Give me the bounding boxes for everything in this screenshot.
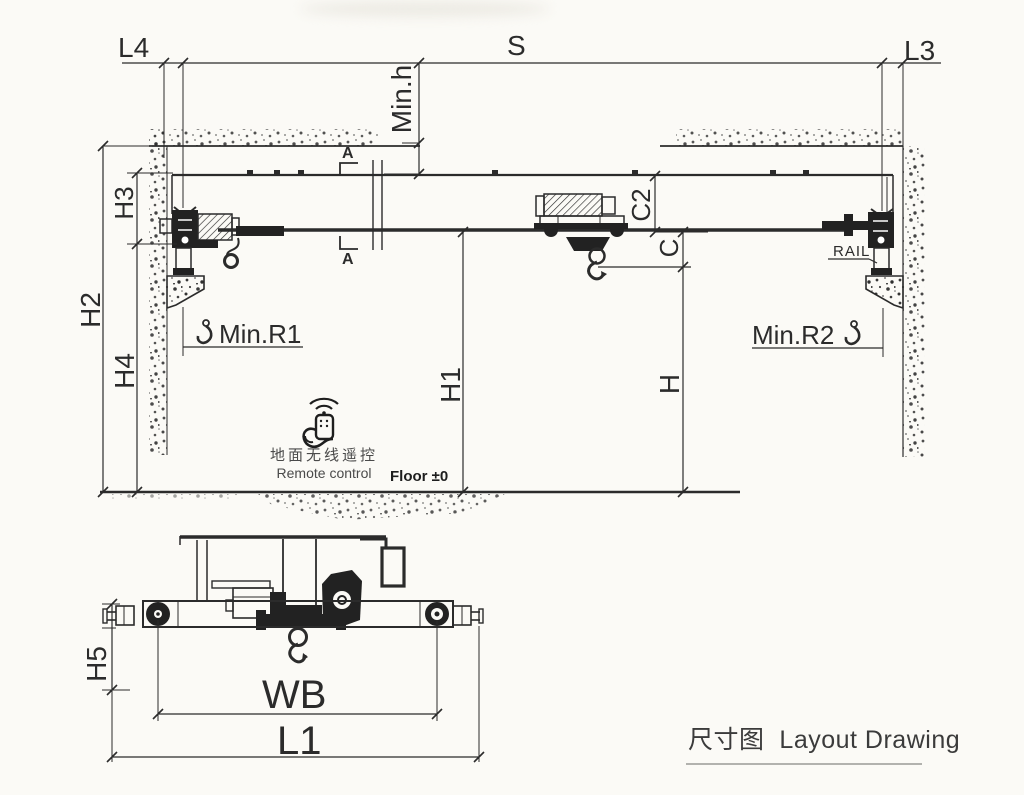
hook-icon-min-r2 <box>846 321 859 344</box>
label-s: S <box>507 32 526 60</box>
label-min-h: Min.h <box>388 60 416 138</box>
left-corbel <box>167 276 204 308</box>
electric-hoist <box>534 194 628 279</box>
right-corbel <box>866 276 903 308</box>
bridge-girder <box>172 175 893 234</box>
left-end-truck <box>160 207 284 275</box>
drawing-title: 尺寸图 Layout Drawing <box>688 728 960 753</box>
scan-artifact <box>300 2 550 16</box>
end-view-hoist <box>226 570 362 662</box>
label-c: C <box>656 212 682 284</box>
right-end-truck <box>822 209 894 275</box>
right-wall <box>903 146 925 457</box>
ceiling-right <box>660 129 903 146</box>
left-wall <box>149 129 167 455</box>
remote-control-icon <box>304 399 338 447</box>
remote-control-label-cn: 地面无线遥控 <box>249 448 399 463</box>
label-h1: H1 <box>437 349 465 421</box>
hook-icon-min-r1 <box>198 320 211 343</box>
label-min-r2: Min.R2 <box>752 322 834 348</box>
drawing-title-en: Layout Drawing <box>779 726 960 754</box>
label-h5: H5 <box>83 628 111 700</box>
floor-level-label: Floor ±0 <box>390 469 448 484</box>
label-c2: C2 <box>628 169 654 241</box>
label-section-a-top: A <box>342 146 354 162</box>
remote-control-label-en: Remote control <box>249 466 399 480</box>
label-section-a-bottom: A <box>342 252 354 268</box>
label-min-r1: Min.R1 <box>219 321 301 347</box>
end-view-walkway <box>180 536 404 602</box>
label-h3: H3 <box>111 167 137 239</box>
label-h2: H2 <box>77 274 105 346</box>
label-wb: WB <box>262 675 326 715</box>
label-l4: L4 <box>118 34 149 62</box>
floor <box>100 492 740 520</box>
drawing-title-cn: 尺寸图 <box>688 726 765 754</box>
layout-drawing-canvas: L4 S L3 Min.h H3 H2 H4 C2 C H1 H Min.R1 … <box>0 0 1024 795</box>
label-h4: H4 <box>111 335 139 407</box>
label-rail: RAIL <box>833 244 870 259</box>
label-h: H <box>656 348 684 420</box>
section-cut-a <box>340 160 382 250</box>
label-l3: L3 <box>904 37 935 65</box>
label-l1: L1 <box>277 721 322 761</box>
crane-linework <box>0 0 1024 795</box>
ceiling-left <box>149 129 420 146</box>
